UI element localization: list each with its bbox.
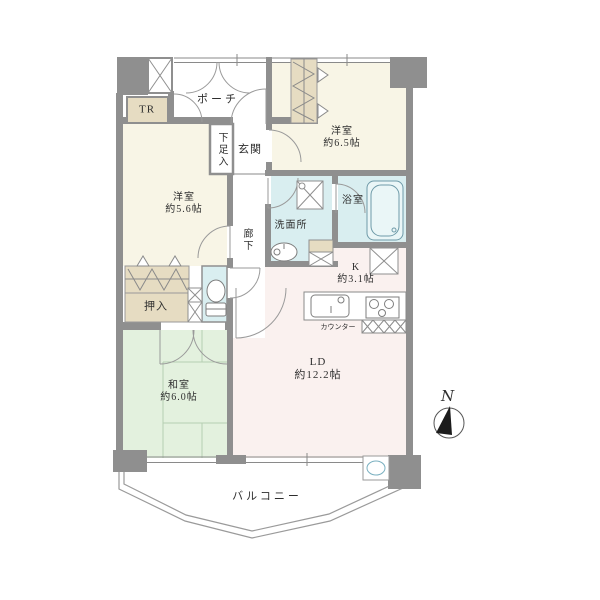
oshiire-label: 押入 bbox=[144, 300, 168, 313]
corridor-label: 廊下 bbox=[240, 228, 252, 252]
living-dining-label: LD 約12.2帖 bbox=[294, 356, 341, 382]
balcony-faucet-icon bbox=[363, 456, 389, 480]
western-room-6-5-label: 洋室 約6.5帖 bbox=[323, 126, 361, 150]
washbasin-icon bbox=[271, 243, 297, 261]
kitchen-label: K 約3.1帖 bbox=[337, 262, 375, 286]
washroom-label: 洗面所 bbox=[275, 220, 308, 232]
balcony-label: バルコニー bbox=[232, 490, 302, 503]
western-room-5-6-label: 洋室 約5.6帖 bbox=[165, 192, 203, 216]
toilet-icon bbox=[206, 280, 226, 316]
pillar-top-left bbox=[117, 57, 148, 95]
counter-label: カウンター bbox=[321, 323, 356, 331]
stove-icon bbox=[366, 297, 399, 318]
washing-machine-icon bbox=[297, 181, 323, 209]
porch-label: ポーチ bbox=[197, 93, 239, 106]
shoe-cabinet-label: 下足入 bbox=[215, 132, 227, 168]
north-label: N bbox=[441, 387, 455, 405]
floor-plan: TR ポーチ 下足入 玄関 洋室 約6.5帖 洋室 約5.6帖 廊下 洗面所 浴… bbox=[0, 0, 600, 600]
trunk-room-label: TR bbox=[139, 103, 155, 116]
floor-plan-drawing bbox=[0, 0, 600, 600]
counter-return-hatch bbox=[362, 320, 406, 333]
pillar-top-right bbox=[390, 57, 427, 88]
corridor-floor bbox=[233, 174, 265, 338]
pillar-bottom-left bbox=[113, 450, 147, 472]
entrance-label: 玄関 bbox=[238, 143, 262, 156]
bathtub-icon bbox=[367, 181, 403, 240]
japanese-room-label: 和室 約6.0帖 bbox=[160, 380, 198, 404]
balcony-outline bbox=[119, 470, 403, 538]
bathroom-label: 浴室 bbox=[342, 195, 364, 207]
washroom-shafts bbox=[309, 240, 333, 266]
duct-shafts bbox=[188, 288, 202, 322]
north-compass-icon bbox=[434, 406, 464, 438]
pillar-bottom-right bbox=[388, 455, 421, 489]
